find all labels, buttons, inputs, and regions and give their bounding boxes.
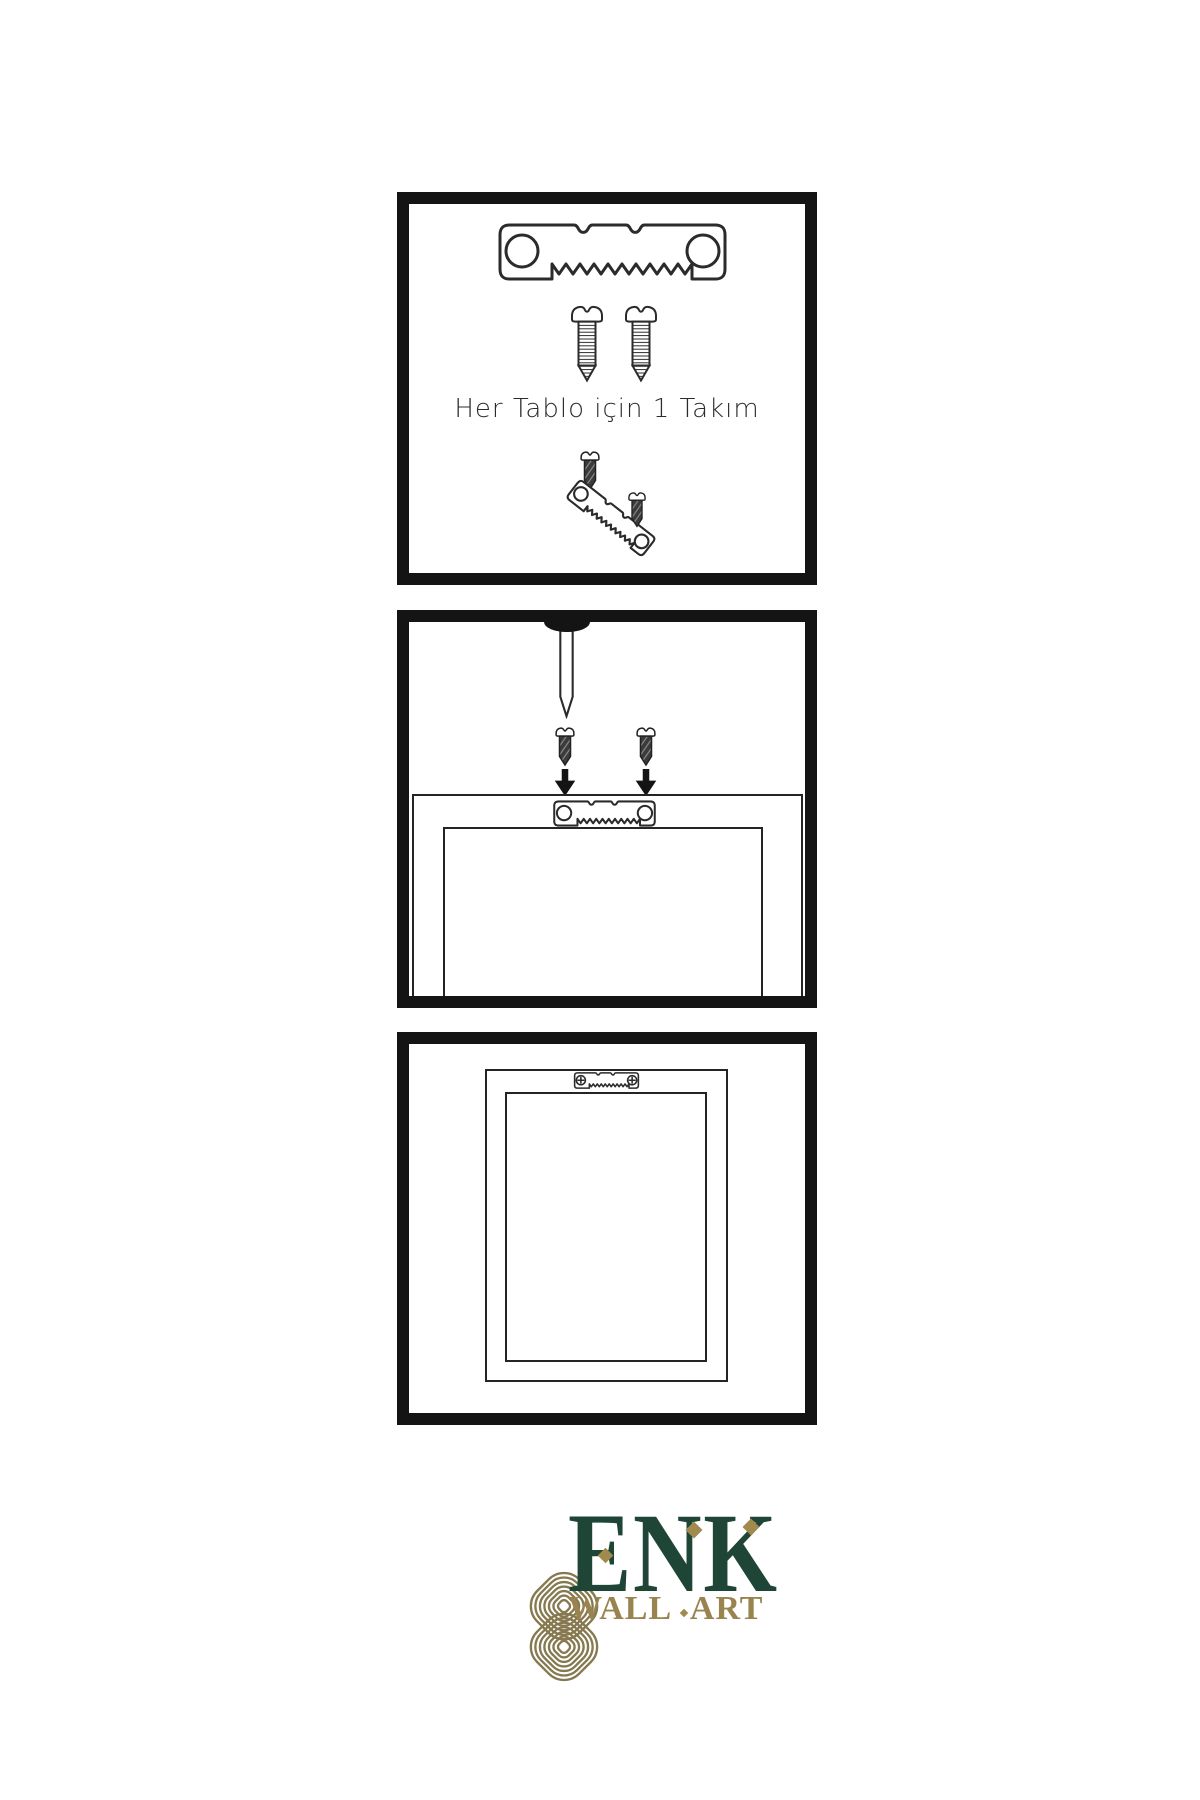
sawtooth-hanger-screwed-icon (573, 1072, 640, 1089)
hung-frame-panel (397, 1032, 817, 1425)
arrow-down-icon (634, 769, 658, 797)
hardware-kit-panel: Her Tablo için 1 Takım (397, 192, 817, 585)
dark-screw-icon (554, 726, 576, 770)
installation-panel (397, 610, 817, 1008)
arrow-down-icon (553, 769, 577, 797)
kit-caption: Her Tablo için 1 Takım (409, 394, 805, 424)
dark-screw-icon (635, 726, 657, 770)
sawtooth-hanger-icon (552, 800, 657, 827)
picture-frame-canvas (505, 1092, 707, 1362)
product-instruction-sheet: Her Tablo için 1 Takım ENK (0, 0, 1200, 1800)
dark-screw-icon (627, 491, 647, 531)
nail-icon (557, 627, 576, 719)
nail-head-icon (544, 622, 590, 632)
picture-frame-canvas (443, 827, 763, 996)
screw-icon (623, 304, 659, 384)
brand-subtitle: WALL ART (568, 1592, 763, 1626)
celtic-knot-logo-icon (438, 1500, 564, 1627)
sawtooth-hanger-icon (495, 222, 730, 282)
screw-icon (569, 304, 605, 384)
